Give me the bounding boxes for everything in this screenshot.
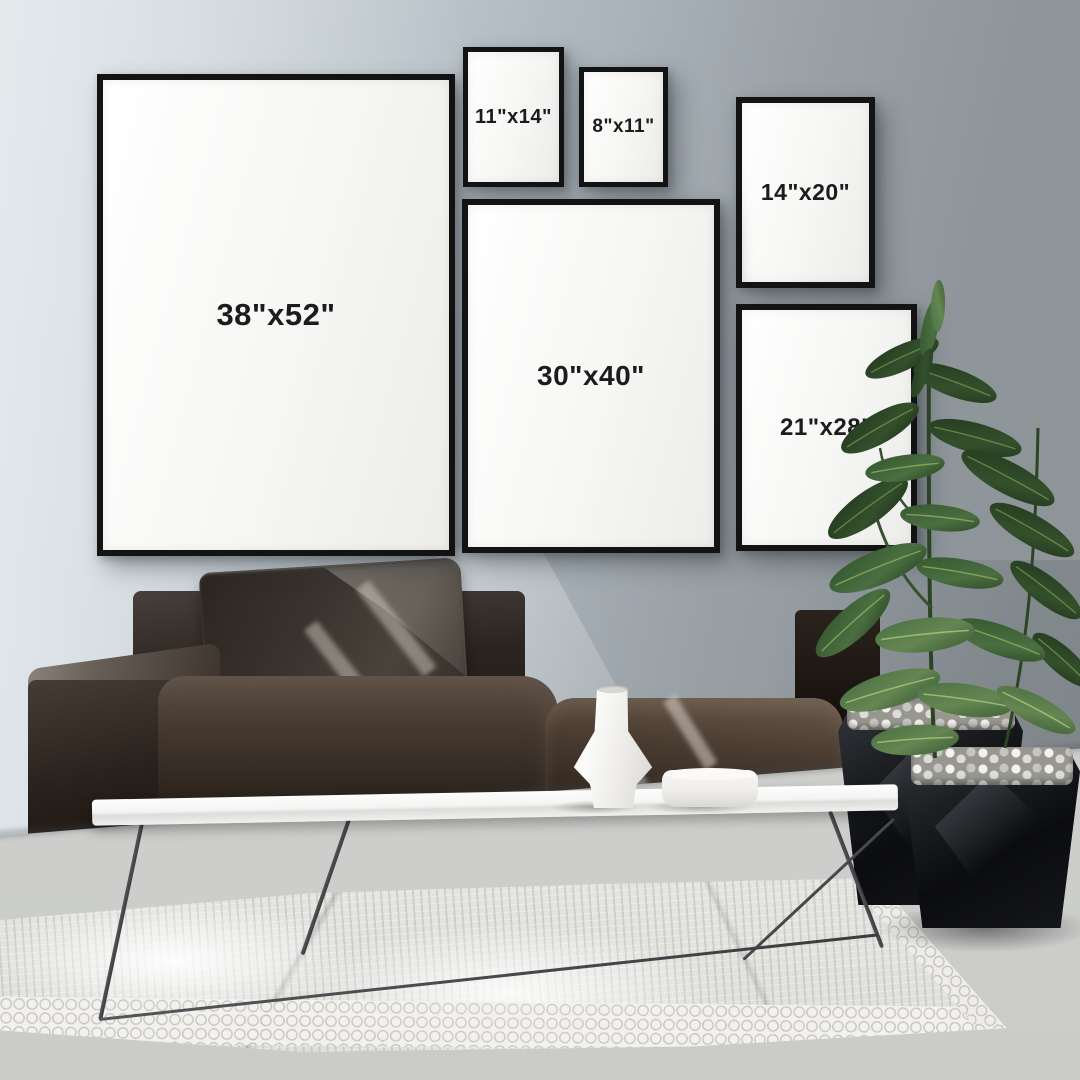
frame-14x20-canvas: 14"x20" (742, 103, 869, 282)
bowl-rim (664, 768, 756, 780)
frame-30x40-canvas: 30"x40" (468, 205, 714, 547)
frame-30x40-size-label: 30"x40" (537, 360, 645, 392)
frame-38x52-canvas: 38"x52" (103, 80, 449, 550)
plant (780, 278, 1080, 778)
frame-8x11: 8"x11" (579, 67, 668, 187)
frame-14x20-size-label: 14"x20" (761, 179, 850, 206)
frame-38x52: 38"x52" (97, 74, 455, 556)
frame-11x14: 11"x14" (463, 47, 564, 187)
frame-8x11-size-label: 8"x11" (592, 116, 654, 138)
scene: 38"x52" 11"x14" 8"x11" 14"x20" 30"x40" 2… (0, 0, 1080, 1080)
frame-38x52-size-label: 38"x52" (216, 297, 335, 333)
frame-8x11-canvas: 8"x11" (584, 72, 663, 182)
frame-14x20: 14"x20" (736, 97, 875, 288)
vase-opening (597, 685, 628, 693)
frame-30x40: 30"x40" (462, 199, 720, 553)
frame-11x14-canvas: 11"x14" (468, 52, 559, 182)
frame-11x14-size-label: 11"x14" (475, 106, 552, 129)
